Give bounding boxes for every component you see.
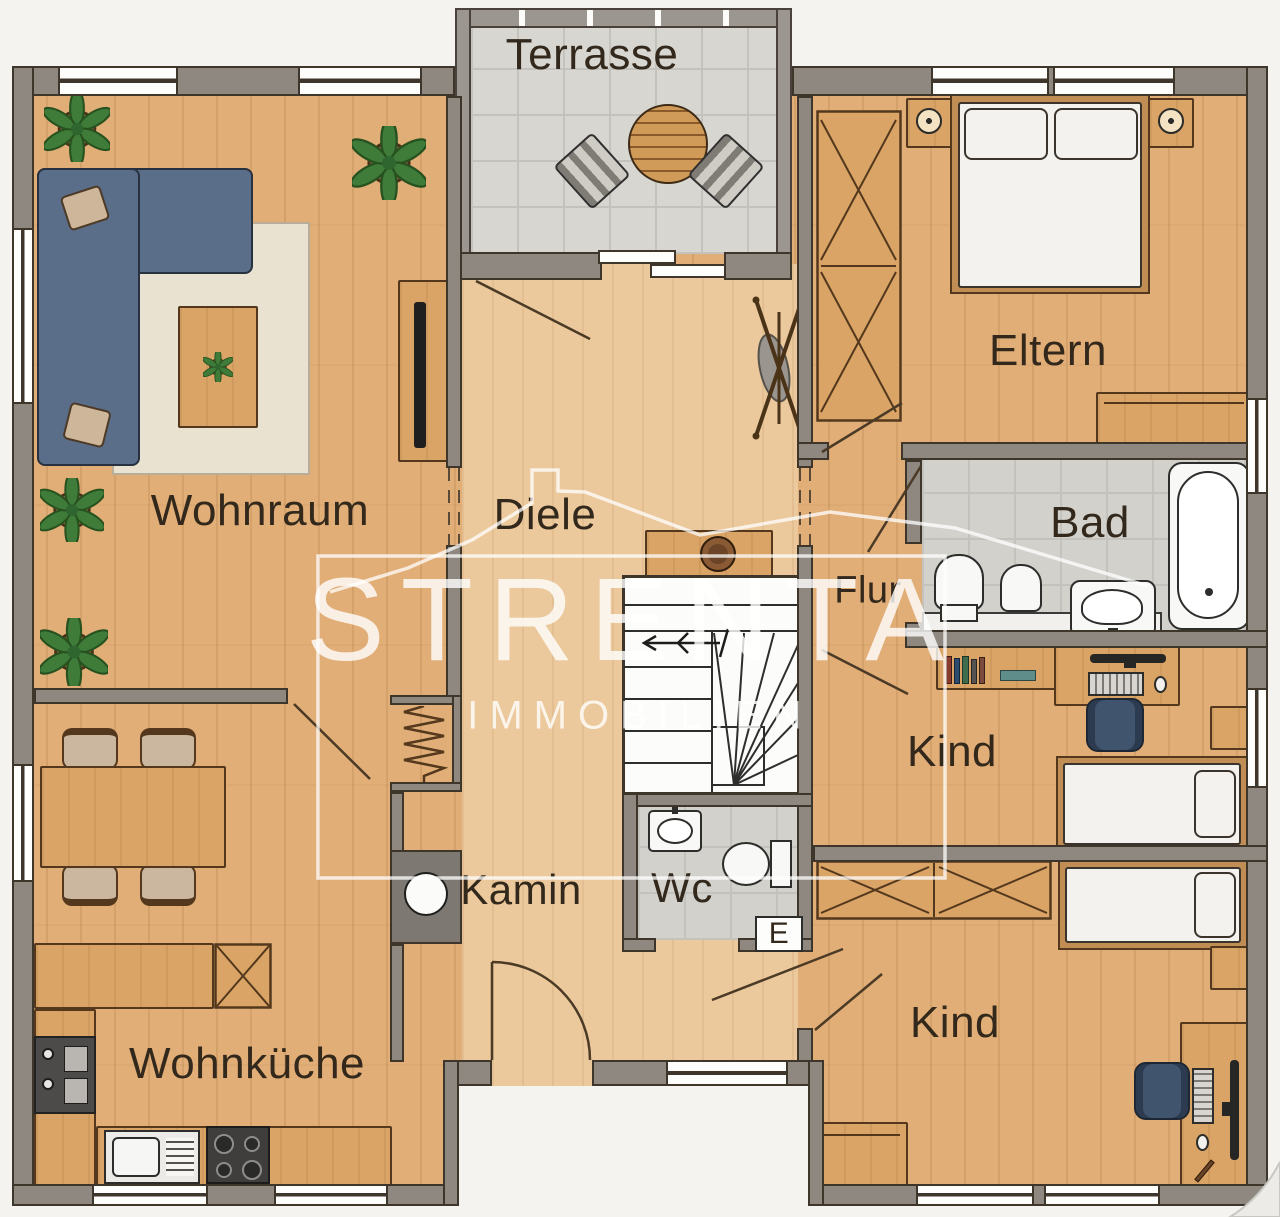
room-label-wohnraum: Wohnraum — [151, 486, 369, 536]
door-swing-lines — [0, 0, 1280, 1217]
room-label-wohnkueche: Wohnküche — [129, 1039, 365, 1089]
room-label-bad: Bad — [1050, 498, 1130, 548]
floorplan-canvas: Terrasse Wohnraum Diele Eltern Bad Flur … — [0, 0, 1280, 1217]
room-label-eltern: Eltern — [989, 326, 1107, 376]
room-label-diele: Diele — [494, 490, 597, 540]
room-label-kind-unten: Kind — [910, 998, 1000, 1048]
room-label-kind-oben: Kind — [907, 727, 997, 777]
room-label-kamin: Kamin — [460, 866, 582, 914]
page-curl — [1200, 1140, 1280, 1217]
room-label-wc: Wc — [651, 864, 713, 912]
room-label-terrasse: Terrasse — [506, 30, 679, 80]
entrance-marker-label: E — [769, 917, 790, 951]
room-label-flur: Flur — [834, 570, 901, 613]
